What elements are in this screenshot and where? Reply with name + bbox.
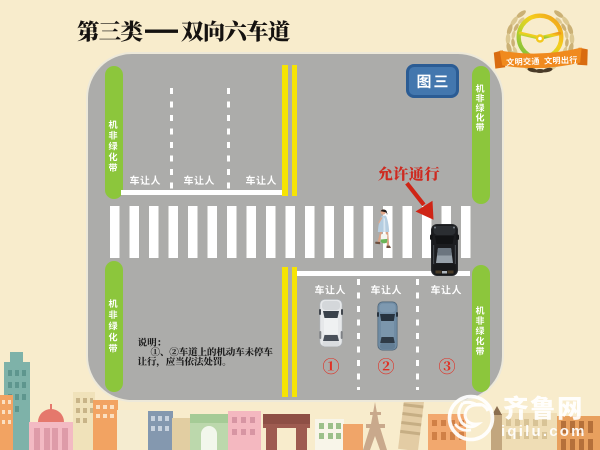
svg-text:iqilu.com: iqilu.com xyxy=(501,423,587,440)
